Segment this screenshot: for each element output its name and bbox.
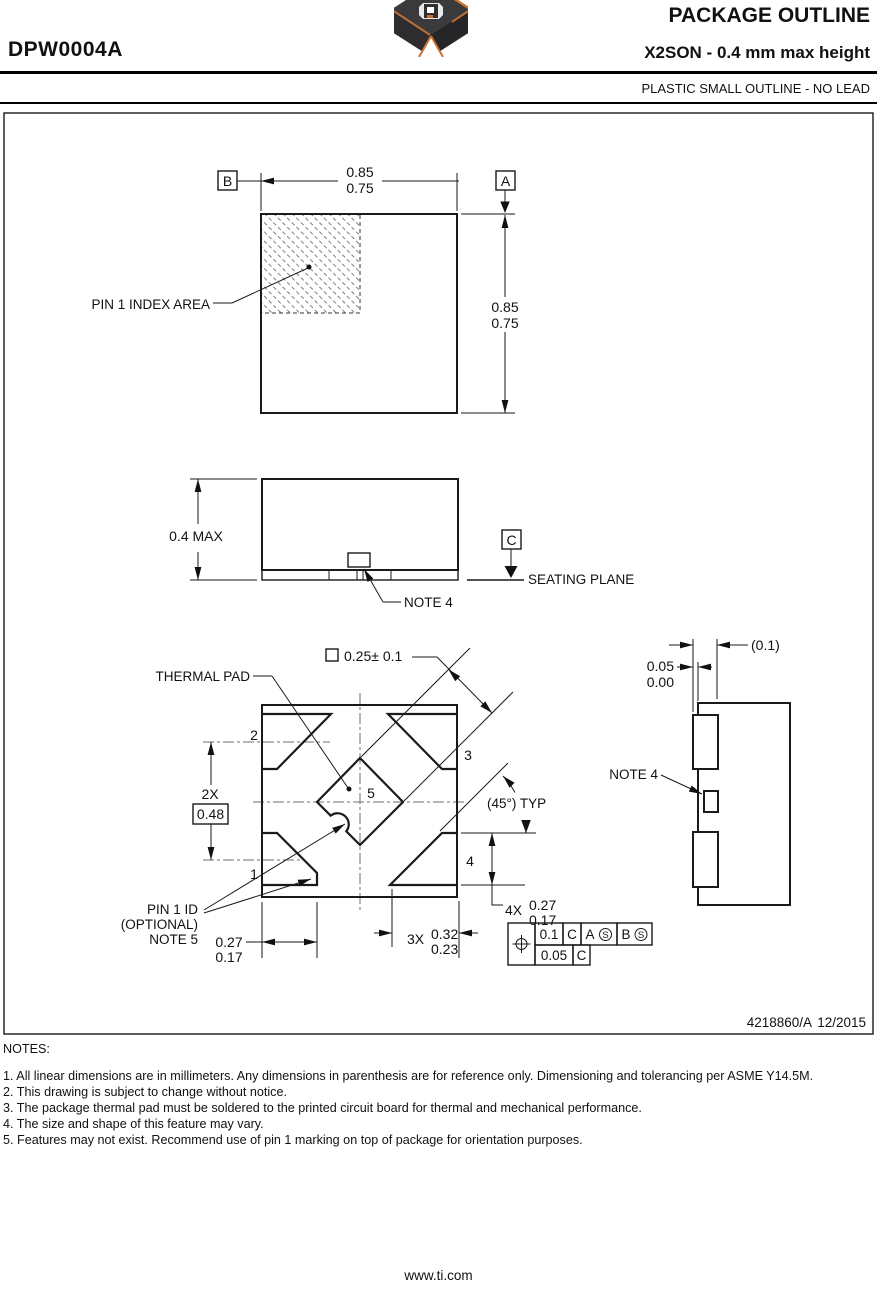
dim-3x-upper: 0.32	[431, 926, 458, 942]
drawing-border	[4, 113, 873, 1034]
dim-005-upper: 0.05	[647, 658, 674, 674]
footer-url: www.ti.com	[0, 1268, 877, 1283]
pin3-label: 3	[464, 747, 472, 763]
package-body-side	[262, 479, 458, 570]
height-max-dim: 0.4 MAX	[169, 528, 223, 544]
pad-pin1	[262, 833, 317, 885]
dim-4x-qty: 4X	[505, 902, 523, 918]
width-dim-lower: 0.75	[346, 180, 373, 196]
datum-a-arrow	[500, 202, 509, 214]
note4-label-side: NOTE 4	[404, 595, 453, 610]
pin4-label: 4	[466, 853, 474, 869]
pin1-id-note5: NOTE 5	[149, 932, 198, 947]
datum-c-arrow	[505, 566, 518, 578]
note-item: 1. All linear dimensions are in millimet…	[3, 1068, 855, 1084]
drawing-number: 4218860/A	[747, 1015, 812, 1030]
pin1-index-area-label: PIN 1 INDEX AREA	[91, 297, 210, 312]
fcf-datum1: C	[567, 927, 577, 942]
thermal-pad-label: THERMAL PAD	[155, 669, 250, 684]
dim-4x-upper: 0.27	[529, 897, 556, 913]
fcf-datum2: A	[585, 927, 594, 942]
datum-c-label: C	[506, 532, 516, 548]
fcf-datum4: C	[577, 948, 587, 963]
lead-strip	[262, 570, 458, 580]
notes-list: 1. All linear dimensions are in millimet…	[3, 1068, 855, 1148]
height-dim-lower: 0.75	[491, 315, 518, 331]
dim-left-upper: 0.27	[215, 934, 242, 950]
dim-3x-lower: 0.23	[431, 941, 458, 957]
top-view: PIN 1 INDEX AREA B 0.85 0.75 A 0.85 0.75	[91, 164, 518, 413]
datum-a-label: A	[501, 173, 511, 189]
note-item: 5. Features may not exist. Recommend use…	[3, 1132, 855, 1148]
package-outline-document: DPW0004A PACKAGE OUTLINE X2SON - 0.4 mm …	[0, 0, 877, 1291]
feature-control-frame: 0.1 C A S B S 0.05 C	[508, 923, 652, 965]
fcf-modifier2: S	[602, 930, 608, 941]
dim-3x-qty: 3X	[407, 931, 425, 947]
dim-ref-01: (0.1)	[751, 637, 780, 653]
datum-b-label: B	[223, 173, 232, 189]
leader-dot	[307, 265, 312, 270]
dim-2x-qty: 2X	[201, 786, 219, 802]
note-item: 3. The package thermal pad must be solde…	[3, 1100, 855, 1116]
width-dim-upper: 0.85	[346, 164, 373, 180]
height-dim-upper: 0.85	[491, 299, 518, 315]
note4-label-detail: NOTE 4	[609, 767, 658, 782]
square-symbol	[326, 649, 338, 661]
bottom-view: 2 1 3 4 5 THERMAL PAD 0.25± 0.1 2X 0.48	[121, 648, 652, 965]
note-item: 4. The size and shape of this feature ma…	[3, 1116, 855, 1132]
note4-feature-detail	[704, 791, 718, 812]
dim-005-lower: 0.00	[647, 674, 674, 690]
pad-pin3	[388, 714, 457, 769]
fcf-tolerance2: 0.05	[541, 948, 567, 963]
dim-4x-lower: 0.17	[529, 912, 556, 928]
dim-2x-value: 0.48	[197, 806, 224, 822]
note4-feature	[348, 553, 370, 567]
fcf-datum3: B	[621, 927, 630, 942]
pin5-label: 5	[367, 785, 375, 801]
leader-dot	[347, 787, 352, 792]
notes-heading: NOTES:	[3, 1042, 50, 1056]
dim-left-lower: 0.17	[215, 949, 242, 965]
lead-detail-lower	[693, 832, 718, 887]
note-item: 2. This drawing is subject to change wit…	[3, 1084, 855, 1100]
drawing-date: 12/2015	[817, 1015, 866, 1030]
pin2-label: 2	[250, 727, 258, 743]
pin1-id-label: PIN 1 ID	[147, 902, 198, 917]
detail-view: (0.1) 0.05 0.00 NOTE 4	[609, 637, 790, 905]
thermal-pad-size-dim: 0.25± 0.1	[344, 648, 402, 664]
pin1-index-hatch	[262, 215, 360, 313]
pad-pin4	[390, 833, 457, 885]
fcf-tolerance1: 0.1	[540, 927, 559, 942]
pin1-id-optional: (OPTIONAL)	[121, 917, 198, 932]
fcf-modifier3: S	[638, 930, 644, 941]
side-view: NOTE 4 0.4 MAX C SEATING PLANE	[169, 479, 634, 610]
lead-detail-upper	[693, 715, 718, 769]
angle-typ-label: (45°) TYP	[487, 796, 546, 811]
seating-plane-label: SEATING PLANE	[528, 572, 634, 587]
